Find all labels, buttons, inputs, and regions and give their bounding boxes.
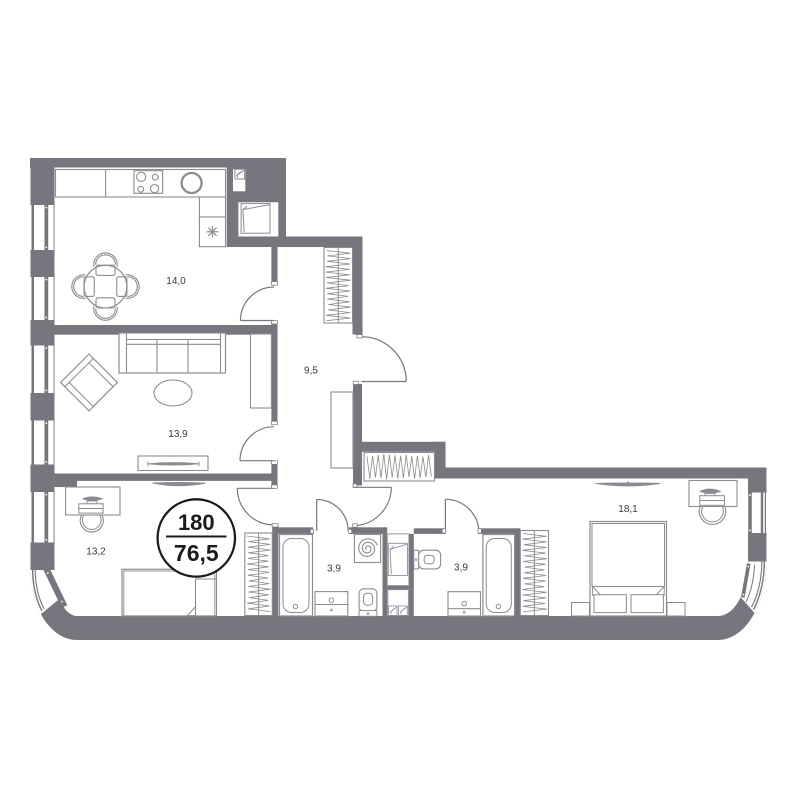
- svg-text:14,0: 14,0: [166, 276, 186, 287]
- svg-text:3,9: 3,9: [327, 564, 341, 575]
- svg-text:13,2: 13,2: [86, 547, 106, 558]
- svg-text:13,9: 13,9: [168, 429, 188, 440]
- svg-text:76,5: 76,5: [174, 540, 219, 566]
- svg-text:9,5: 9,5: [304, 366, 318, 377]
- svg-text:180: 180: [178, 510, 215, 535]
- svg-text:3,9: 3,9: [454, 563, 468, 574]
- svg-text:18,1: 18,1: [618, 504, 638, 515]
